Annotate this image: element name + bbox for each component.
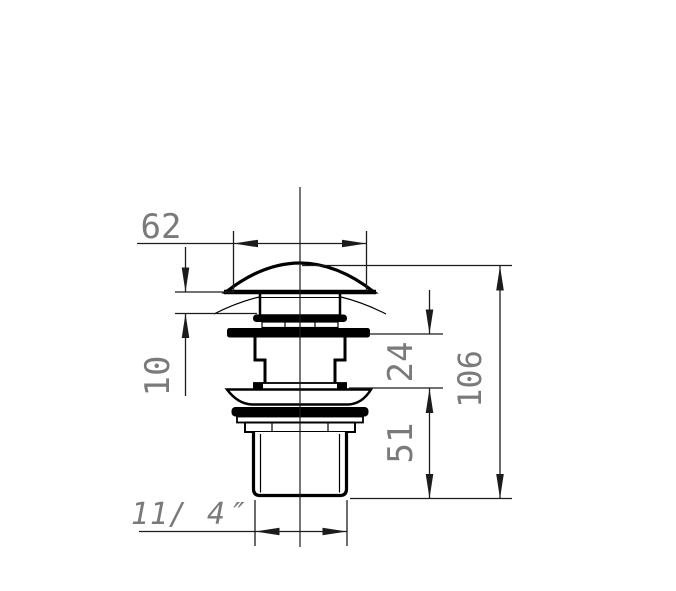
arrow-right-icon [323,528,348,536]
arrow-down-icon [426,310,434,335]
dim-10: 10 [138,247,257,396]
arrow-left-icon [255,528,280,536]
arrow-left-icon [234,240,259,248]
dim-label-thread-size: 11/ 4″ [131,497,245,532]
arrow-up-icon [182,314,190,339]
dim-label-thread-length: 51 [381,423,421,464]
dim-label-overall-height: 106 [451,350,489,408]
dim-label-neck-height: 24 [381,342,421,383]
drain-valve-part [214,187,386,547]
dim-24: 24 [349,290,443,388]
technical-drawing-canvas: 62 10 24 51 [0,0,676,591]
arrow-up-icon [496,266,504,291]
arrow-right-icon [342,240,367,248]
dim-label-cap-edge-height: 10 [138,356,178,397]
arrow-up-icon [426,389,434,414]
arrow-down-icon [182,268,190,293]
arrow-down-icon [496,474,504,499]
tapered-washer [227,390,371,405]
drain-valve-technical-drawing: 62 10 24 51 [0,0,676,591]
arrow-down-icon [426,474,434,499]
dim-51: 51 [381,388,433,499]
dim-label-cap-width: 62 [141,207,182,247]
dim-thread-size: 11/ 4″ [131,497,347,546]
mounting-flange [227,328,370,338]
